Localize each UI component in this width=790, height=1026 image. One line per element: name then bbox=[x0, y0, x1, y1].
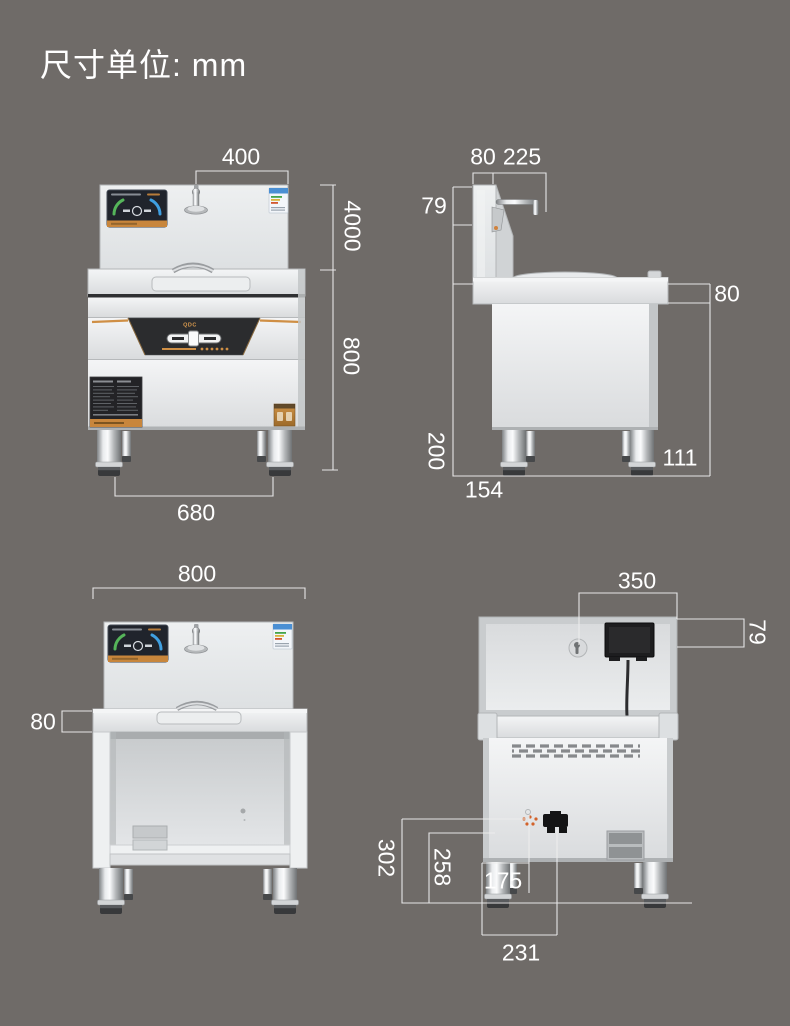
control-panel-logo: QDC bbox=[183, 323, 197, 329]
vent-grille bbox=[607, 831, 644, 860]
dim-water-inlet-offset-label: 175 bbox=[484, 870, 522, 893]
display-screen bbox=[107, 190, 167, 227]
dim-backsplash-depth-label: 80 bbox=[470, 146, 496, 169]
faucet-mount-hole bbox=[569, 639, 587, 657]
side-view-illustration bbox=[473, 185, 668, 476]
dim-leg-spacing-label: 680 bbox=[177, 502, 215, 525]
leg bbox=[622, 431, 631, 462]
dim-faucet-rise-label: 79 bbox=[421, 195, 447, 218]
dim-line-box-height bbox=[677, 619, 744, 647]
dim-faucet-reach-label: 225 bbox=[503, 146, 541, 169]
dim-line-heights bbox=[320, 185, 338, 470]
leg bbox=[501, 430, 528, 476]
dim-countertop-thickness-side-label: 80 bbox=[714, 283, 740, 306]
page-title: 尺寸单位: mm bbox=[40, 40, 247, 86]
dim-line-overall-width bbox=[93, 588, 305, 599]
front-view-stove-illustration bbox=[88, 185, 305, 476]
leg bbox=[642, 862, 669, 908]
leg bbox=[124, 869, 133, 900]
dim-line-faucet-span bbox=[196, 171, 288, 184]
dim-backsplash-height-label: 4000 bbox=[341, 200, 364, 251]
dim-leg-height-label: 200 bbox=[425, 432, 448, 470]
leg bbox=[629, 430, 656, 476]
energy-label bbox=[273, 624, 292, 649]
dim-power-cord-offset-label: 231 bbox=[502, 942, 540, 965]
energy-label bbox=[269, 188, 288, 213]
leg bbox=[526, 431, 535, 462]
spec-label bbox=[90, 377, 142, 427]
leg bbox=[122, 431, 131, 462]
dim-junction-box-height-label: 79 bbox=[746, 619, 769, 645]
junction-box bbox=[605, 623, 654, 661]
body bbox=[492, 304, 658, 430]
brand-badge bbox=[274, 404, 295, 426]
dim-front-leg-inset-label: 154 bbox=[465, 479, 503, 502]
dim-countertop-thickness-front-label: 80 bbox=[30, 711, 56, 734]
display-screen bbox=[108, 625, 168, 662]
dim-body-height-label: 800 bbox=[340, 337, 363, 375]
leg bbox=[272, 868, 299, 914]
dim-overall-width-label: 800 bbox=[178, 563, 216, 586]
dim-mid-bracket-height-label: 258 bbox=[431, 848, 454, 886]
dim-junction-box-span-label: 350 bbox=[618, 570, 656, 593]
dim-water-inlet-height-label: 302 bbox=[375, 839, 398, 877]
dimension-diagram-page: 尺寸单位: mm 400 4000 800 680 80 225 79 80 2… bbox=[0, 0, 790, 1026]
dim-rear-leg-inset-label: 111 bbox=[663, 447, 698, 470]
dim-line-leg-spacing bbox=[115, 477, 273, 496]
leg bbox=[98, 868, 125, 914]
leg bbox=[257, 431, 266, 462]
countertop bbox=[479, 716, 677, 738]
faucet-icon bbox=[492, 200, 539, 233]
leg bbox=[263, 869, 272, 900]
back-view-illustration bbox=[478, 617, 678, 908]
leg bbox=[96, 430, 123, 476]
dim-faucet-span-label: 400 bbox=[222, 146, 260, 169]
leg bbox=[634, 863, 643, 894]
dim-line-counter-thickness-front bbox=[62, 711, 92, 732]
front-view-stand-illustration bbox=[93, 622, 307, 914]
power-cable bbox=[627, 660, 628, 716]
leg bbox=[267, 430, 294, 476]
